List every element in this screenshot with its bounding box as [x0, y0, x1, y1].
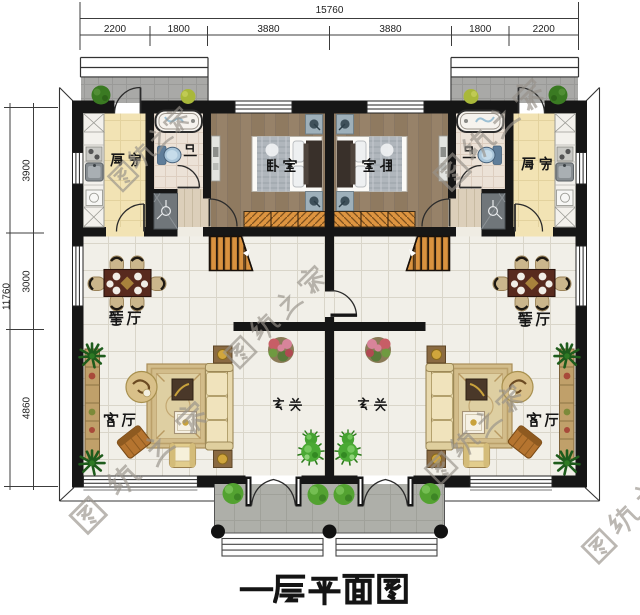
svg-text:15760: 15760	[316, 5, 344, 16]
svg-text:2200: 2200	[533, 24, 556, 35]
svg-text:3880: 3880	[257, 24, 280, 35]
svg-text:2200: 2200	[104, 24, 127, 35]
svg-text:3000: 3000	[22, 270, 33, 293]
svg-text:11760: 11760	[2, 283, 13, 311]
svg-text:3900: 3900	[22, 159, 33, 182]
svg-text:1800: 1800	[168, 24, 191, 35]
svg-text:1800: 1800	[469, 24, 492, 35]
svg-text:4860: 4860	[22, 396, 33, 419]
svg-text:3880: 3880	[379, 24, 402, 35]
